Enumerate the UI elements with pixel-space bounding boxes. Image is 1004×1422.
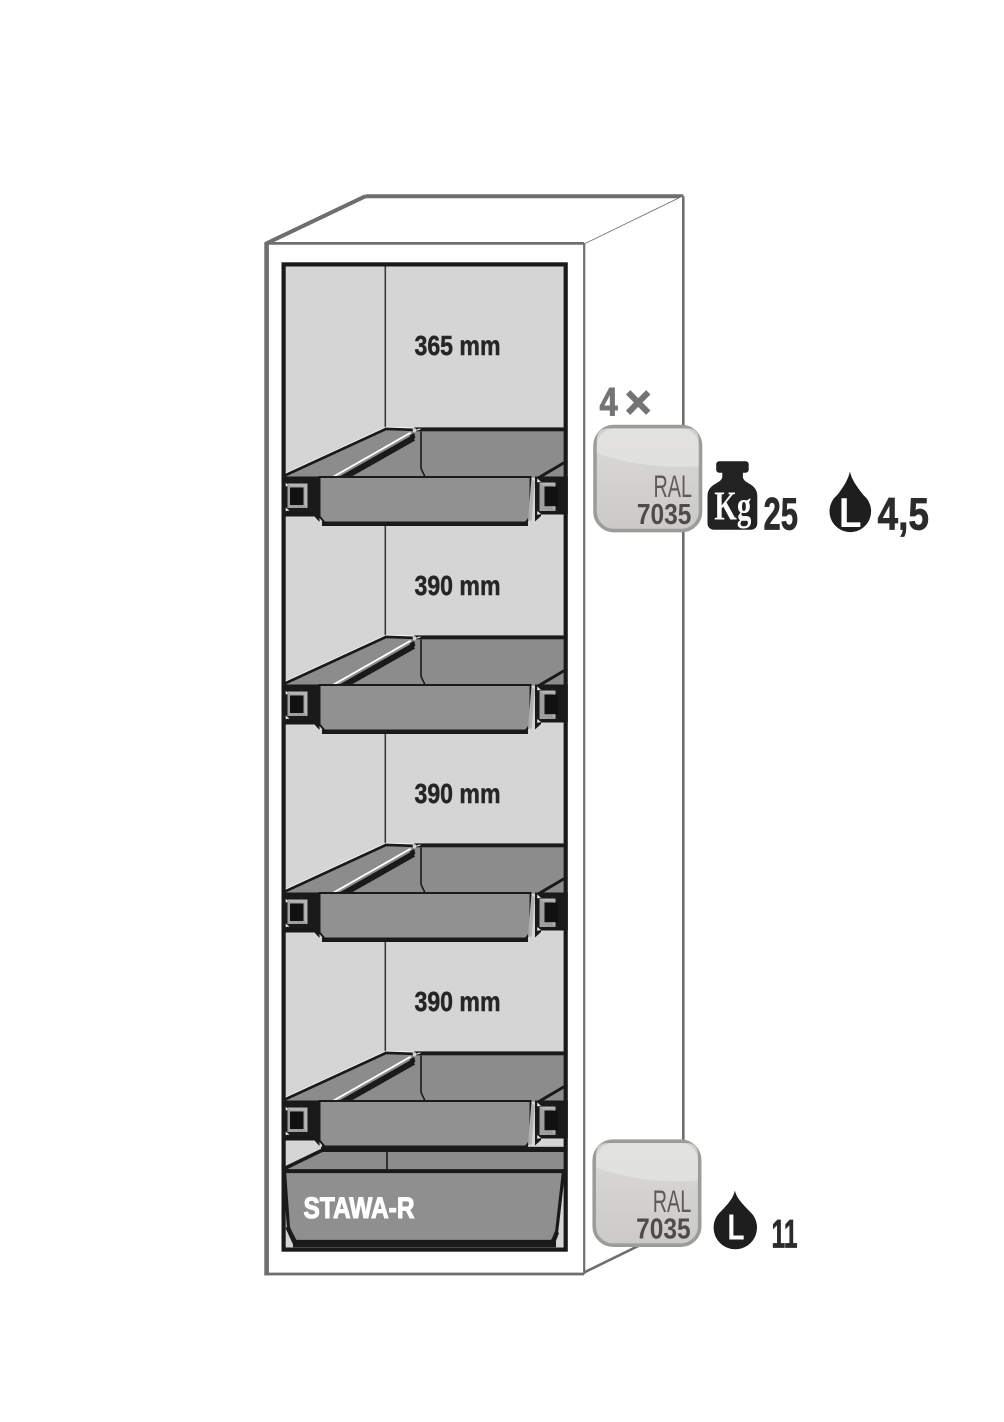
svg-text:390 mm: 390 mm <box>415 986 501 1017</box>
svg-text:11: 11 <box>772 1213 798 1257</box>
svg-text:Kg: Kg <box>714 483 751 529</box>
svg-text:390 mm: 390 mm <box>415 778 501 809</box>
svg-text:25: 25 <box>764 489 799 540</box>
svg-text:390 mm: 390 mm <box>415 570 501 601</box>
svg-text:STAWA-R: STAWA-R <box>304 1192 415 1225</box>
svg-text:×: × <box>625 376 652 428</box>
svg-text:365 mm: 365 mm <box>415 330 501 361</box>
svg-text:L: L <box>728 1206 745 1247</box>
svg-text:4,5: 4,5 <box>878 489 930 540</box>
svg-text:4: 4 <box>600 381 618 425</box>
svg-text:L: L <box>839 489 862 536</box>
